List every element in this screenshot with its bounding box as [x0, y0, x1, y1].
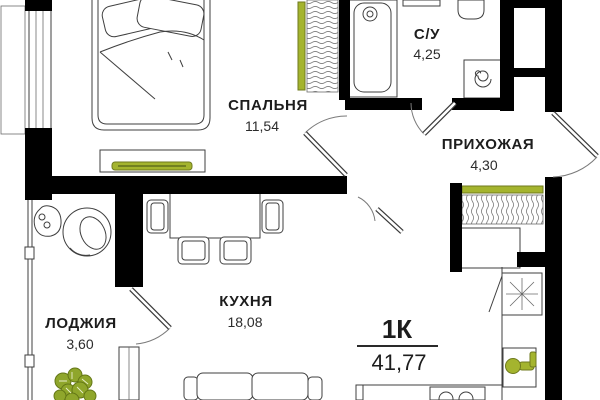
wardrobe-rail — [298, 2, 305, 90]
apartment-total-area: 41,77 — [371, 350, 426, 375]
faucet-icon — [530, 352, 536, 367]
wardrobe-rail — [462, 186, 543, 193]
dining-table — [170, 188, 260, 238]
toilet — [458, 0, 484, 19]
bathroom-shelf — [403, 0, 440, 6]
floor-plan: СПАЛЬНЯ 11,54 С/У 4,25 ПРИХОЖАЯ 4,30 КУХ… — [0, 0, 600, 400]
kitchen-label: КУХНЯ — [219, 293, 272, 310]
hallway-area: 4,30 — [470, 157, 497, 173]
bathroom-label: С/У — [414, 26, 440, 43]
floor-plan-canvas: СПАЛЬНЯ 11,54 С/У 4,25 ПРИХОЖАЯ 4,30 КУХ… — [0, 0, 600, 400]
kitchen-area: 18,08 — [227, 314, 262, 330]
loggia-label: ЛОДЖИЯ — [45, 315, 116, 332]
hallway-label: ПРИХОЖАЯ — [442, 136, 535, 153]
bedroom-label: СПАЛЬНЯ — [228, 97, 308, 114]
hob — [430, 387, 485, 400]
apartment-type: 1К — [382, 314, 412, 344]
bedroom-wardrobe — [298, 0, 338, 92]
kitchen-sink — [503, 348, 536, 387]
chair — [147, 200, 168, 233]
armchair — [63, 208, 111, 256]
chair — [178, 237, 209, 264]
washing-machine — [464, 60, 503, 98]
balcony-window — [119, 347, 139, 400]
bedroom-area: 11,54 — [245, 118, 279, 134]
faucet-icon — [506, 359, 521, 374]
loggia-area: 3,60 — [66, 336, 93, 352]
fridge-snowflake-icon — [506, 278, 538, 310]
sofa — [184, 373, 322, 400]
bathroom-area: 4,25 — [413, 46, 440, 62]
side-table — [34, 206, 61, 237]
chair — [262, 200, 283, 233]
chair — [220, 237, 251, 264]
tv-stand — [100, 150, 205, 172]
hallway-cabinet — [458, 228, 520, 268]
bathtub — [348, 0, 397, 97]
